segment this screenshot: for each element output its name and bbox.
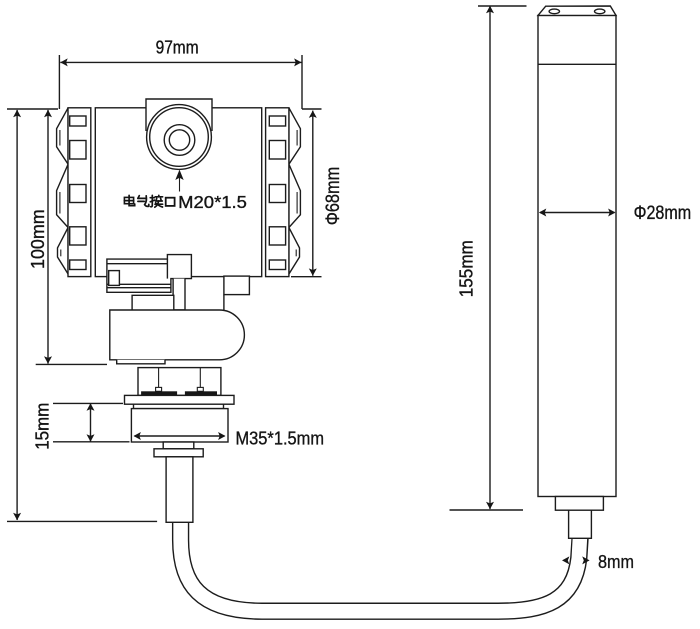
svg-text:15mm: 15mm	[32, 403, 52, 450]
svg-text:M35*1.5mm: M35*1.5mm	[236, 428, 325, 449]
svg-text:Φ68mm: Φ68mm	[323, 167, 344, 225]
svg-text:155mm: 155mm	[456, 240, 476, 297]
svg-text:100mm: 100mm	[28, 209, 48, 269]
svg-text:Φ28mm: Φ28mm	[634, 202, 692, 224]
svg-text:97mm: 97mm	[156, 38, 199, 58]
svg-text:8mm: 8mm	[598, 551, 634, 572]
svg-text:M20*1.5: M20*1.5	[178, 192, 247, 212]
